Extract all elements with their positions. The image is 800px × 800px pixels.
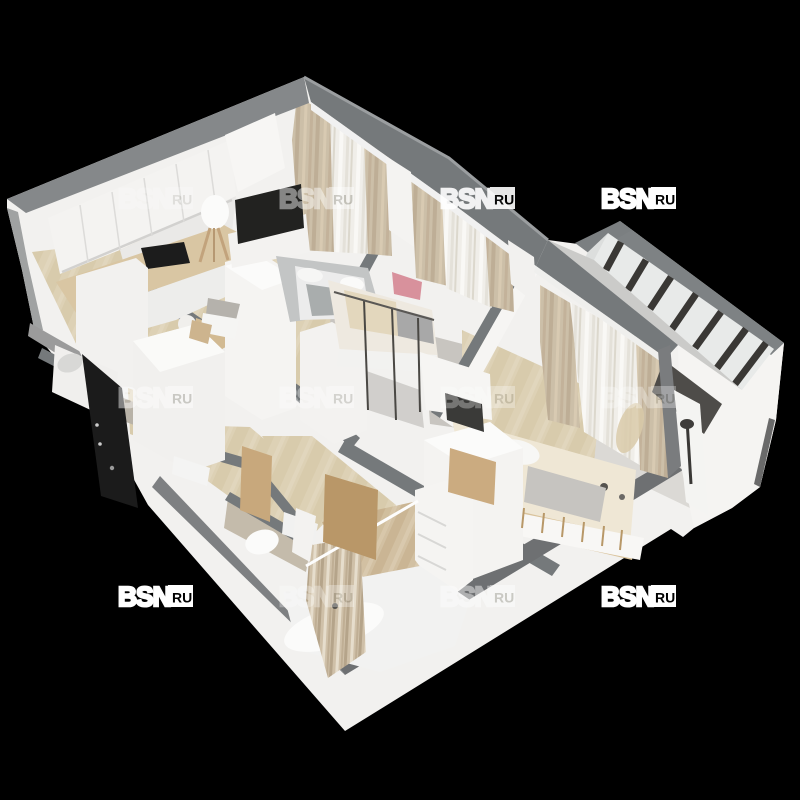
svg-text:RU: RU [655,391,675,407]
svg-text:BSN: BSN [279,580,332,612]
svg-text:RU: RU [494,192,514,208]
svg-text:RU: RU [333,590,353,606]
svg-text:BSN: BSN [440,182,493,214]
svg-text:RU: RU [333,192,353,208]
svg-text:RU: RU [333,391,353,407]
svg-text:BSN: BSN [279,381,332,413]
svg-text:RU: RU [172,590,192,606]
svg-text:RU: RU [655,192,675,208]
svg-text:RU: RU [494,590,514,606]
svg-text:RU: RU [172,391,192,407]
svg-text:BSN: BSN [279,182,332,214]
svg-text:BSN: BSN [118,182,171,214]
svg-text:RU: RU [172,192,192,208]
svg-text:BSN: BSN [440,580,493,612]
svg-text:BSN: BSN [601,182,654,214]
svg-text:RU: RU [655,590,675,606]
svg-text:BSN: BSN [601,381,654,413]
svg-text:BSN: BSN [601,580,654,612]
svg-text:BSN: BSN [440,381,493,413]
svg-text:BSN: BSN [118,580,171,612]
svg-text:BSN: BSN [118,381,171,413]
svg-text:RU: RU [494,391,514,407]
